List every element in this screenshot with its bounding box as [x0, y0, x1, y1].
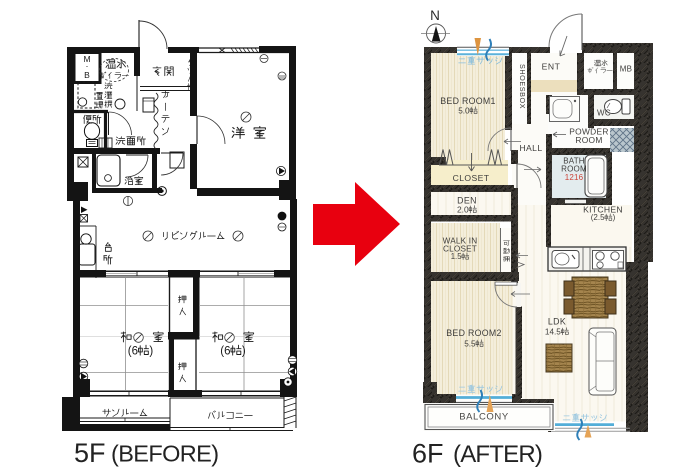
- svg-text:BALCONY: BALCONY: [459, 412, 509, 423]
- svg-text:BED ROOM1: BED ROOM1: [440, 96, 496, 106]
- svg-text:BED ROOM2: BED ROOM2: [446, 328, 502, 338]
- svg-text:6: 6: [132, 345, 138, 357]
- svg-text:5: 5: [600, 213, 605, 222]
- svg-text:HALL: HALL: [519, 143, 542, 153]
- svg-text:6: 6: [224, 345, 230, 357]
- svg-text:): ): [149, 345, 153, 357]
- svg-text:0: 0: [464, 204, 469, 214]
- svg-text:0: 0: [465, 106, 470, 115]
- svg-text:1216: 1216: [565, 173, 584, 182]
- svg-text:(BEFORE): (BEFORE): [111, 441, 218, 467]
- svg-text:5F: 5F: [74, 438, 106, 467]
- svg-text:5: 5: [457, 252, 462, 261]
- svg-text:6F: 6F: [412, 439, 444, 467]
- svg-text:MB: MB: [620, 65, 633, 74]
- svg-text:CLOSET: CLOSET: [453, 173, 490, 183]
- svg-text:): ): [242, 345, 246, 357]
- svg-text:(AFTER): (AFTER): [453, 441, 542, 467]
- svg-text:ROOM: ROOM: [575, 135, 602, 145]
- svg-text:B: B: [84, 70, 90, 80]
- svg-text:5: 5: [556, 327, 561, 336]
- svg-text:SHOESBOX: SHOESBOX: [518, 64, 527, 109]
- svg-text:): ): [613, 213, 616, 222]
- svg-text:WC: WC: [597, 109, 611, 118]
- svg-text:5: 5: [471, 339, 476, 348]
- svg-text:ENT: ENT: [542, 62, 561, 72]
- svg-text:N: N: [430, 8, 440, 23]
- svg-text:LDK: LDK: [548, 317, 566, 327]
